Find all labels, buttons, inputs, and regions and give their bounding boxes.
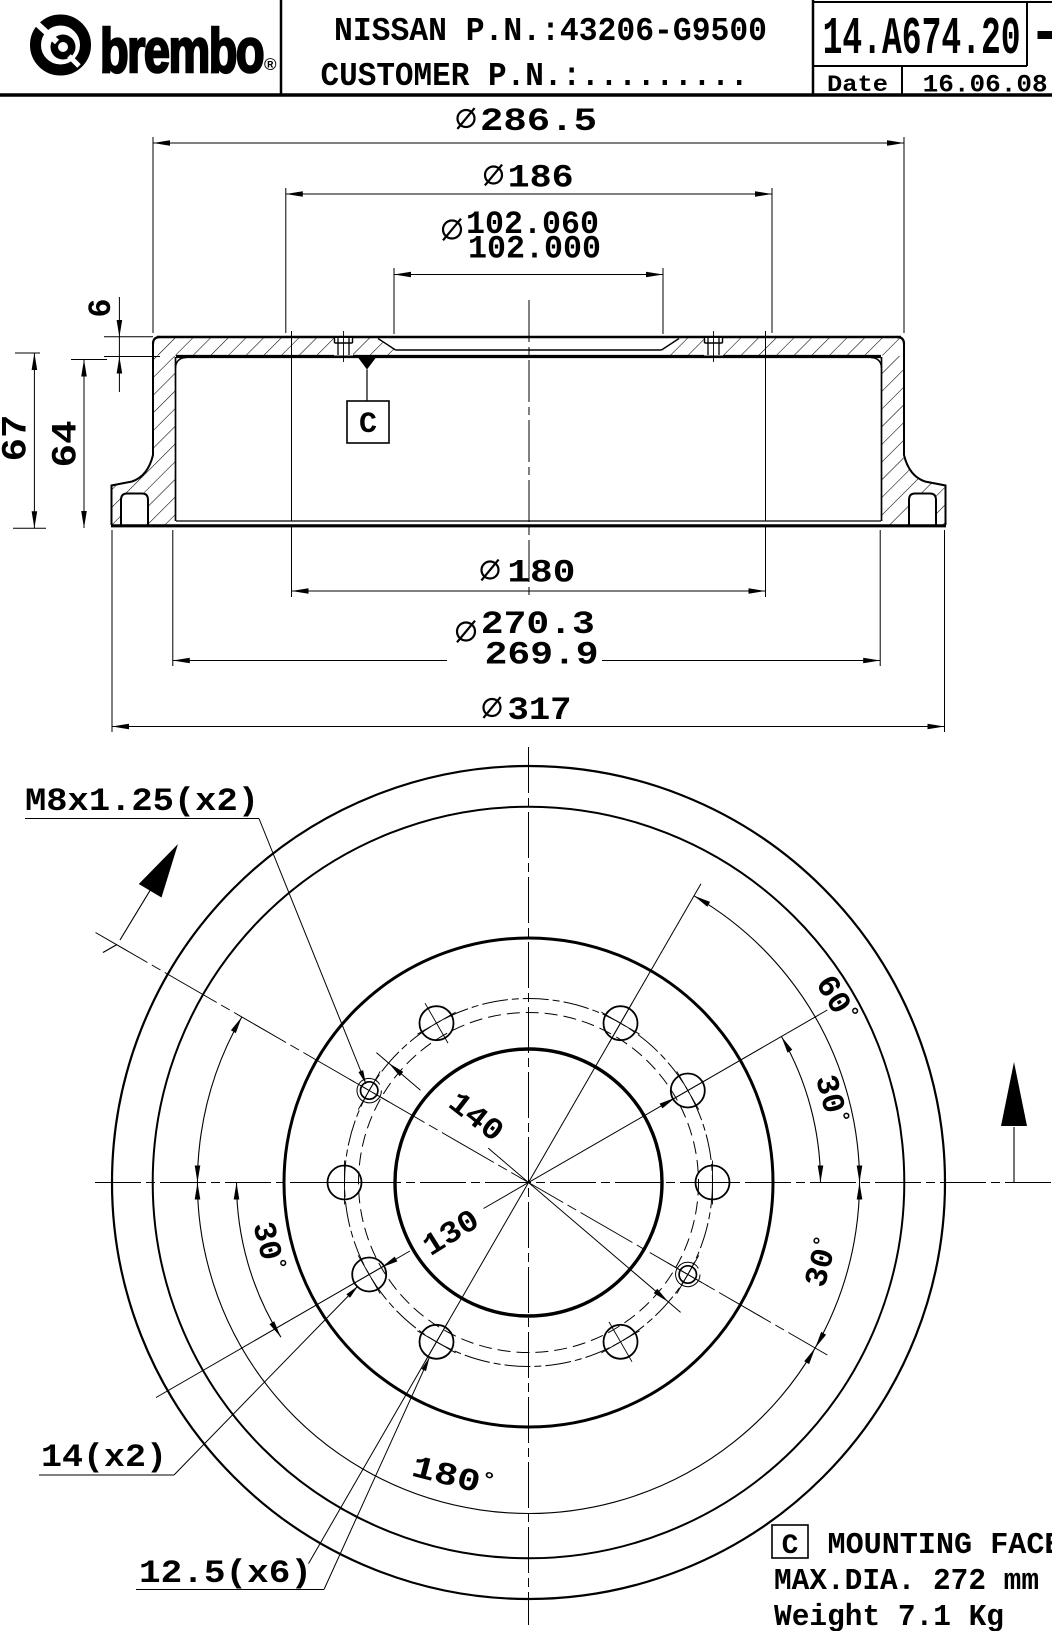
svg-text:67: 67 [0, 415, 37, 462]
svg-text:14(x2): 14(x2) [41, 1439, 167, 1476]
svg-text:16.06.08: 16.06.08 [923, 71, 1048, 100]
svg-text:180: 180 [507, 555, 575, 592]
svg-text:317: 317 [508, 692, 572, 729]
svg-text:12.5(x6): 12.5(x6) [139, 1555, 312, 1592]
svg-text:Date: Date [827, 72, 888, 98]
svg-text:102.000: 102.000 [468, 231, 601, 268]
svg-text:C: C [359, 408, 377, 442]
svg-text:186: 186 [508, 160, 574, 197]
svg-text:C: C [782, 1531, 799, 1562]
svg-text:64: 64 [47, 421, 87, 468]
svg-text:6: 6 [83, 298, 120, 317]
svg-text:M8x1.25(x2): M8x1.25(x2) [25, 783, 259, 820]
svg-text:14.A674.20: 14.A674.20 [823, 9, 1021, 69]
svg-text:Weight 7.1 Kg: Weight 7.1 Kg [774, 1600, 1004, 1631]
svg-text:MAX.DIA. 272 mm: MAX.DIA. 272 mm [774, 1564, 1039, 1599]
svg-text:269.9: 269.9 [485, 637, 599, 674]
svg-text:286.5: 286.5 [480, 103, 597, 140]
svg-text:CUSTOMER P.N.:.........: CUSTOMER P.N.:......... [321, 58, 749, 95]
svg-text:®: ® [264, 55, 277, 74]
svg-text:brembo: brembo [100, 17, 263, 86]
svg-text:MOUNTING FACE: MOUNTING FACE [828, 1528, 1052, 1563]
svg-text:NISSAN P.N.:43206-G9500: NISSAN P.N.:43206-G9500 [334, 13, 767, 50]
